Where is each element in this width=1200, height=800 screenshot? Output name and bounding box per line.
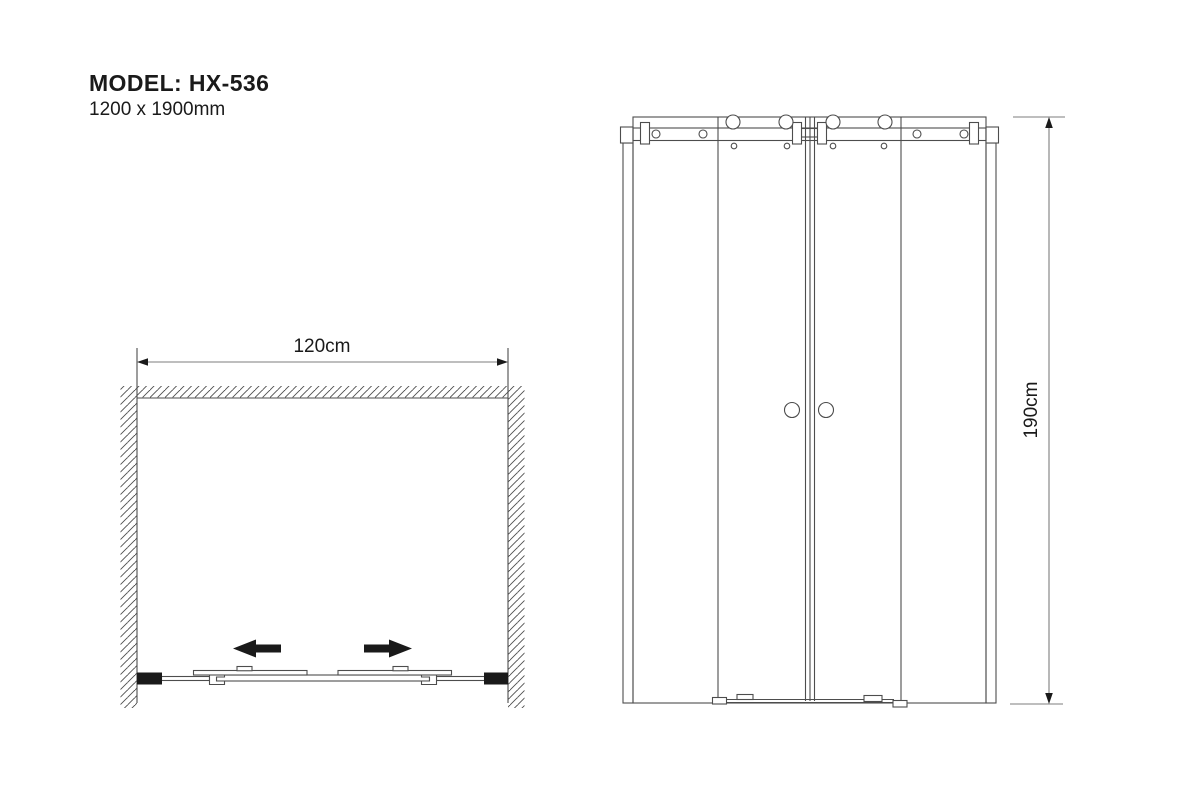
right-support-bar [437, 677, 485, 681]
left-bottom-guide [713, 698, 727, 705]
fixed-panel-profile [217, 675, 430, 681]
anti-jump-stop-icon [784, 143, 790, 149]
right-wall-bracket [484, 673, 508, 685]
right-wall-profile-cap [986, 127, 999, 143]
slide-direction-left-arrow-icon [233, 640, 281, 658]
roller-icon [779, 115, 793, 129]
plan-width-label: 120cm [293, 336, 350, 357]
track-screw-icon [652, 130, 660, 138]
plan-top-wall-hatch [137, 386, 508, 398]
left-wall-profile-cap [621, 127, 634, 143]
technical-drawing-page: MODEL: HX-536 1200 x 1900mm 120cm [0, 0, 1200, 800]
roller-icon [878, 115, 892, 129]
plan-width-dimension: 120cm [137, 336, 508, 366]
left-wall-profile [623, 143, 633, 703]
left-support-bar [162, 677, 210, 681]
plan-left-wall-hatch [121, 386, 138, 708]
right-wall-profile [986, 143, 996, 703]
left-bottom-stopper [737, 695, 753, 700]
track-screw-icon [699, 130, 707, 138]
center-right-track-bracket [818, 123, 827, 145]
right-bottom-stopper [864, 696, 882, 702]
slide-direction-right-arrow-icon [364, 640, 412, 658]
left-wall-bracket [137, 673, 162, 685]
roller-icon [826, 115, 840, 129]
plan-right-wall-hatch [508, 386, 525, 708]
right-bottom-guide [893, 701, 907, 708]
dimension-arrow-down-icon [1045, 693, 1053, 704]
left-roller-carrier [237, 667, 252, 671]
anti-jump-stop-icon [830, 143, 836, 149]
track-screw-icon [913, 130, 921, 138]
plan-door-assembly [137, 667, 508, 685]
dimension-arrow-left-icon [137, 358, 148, 366]
right-roller-carrier [393, 667, 408, 671]
dimension-arrow-right-icon [497, 358, 508, 366]
track-screw-icon [960, 130, 968, 138]
anti-jump-stop-icon [731, 143, 737, 149]
roller-icon [726, 115, 740, 129]
right-door-handle-knob [819, 403, 834, 418]
dimension-arrow-up-icon [1045, 117, 1053, 128]
elevation-height-dimension: 190cm [1010, 117, 1065, 704]
plan-view: 120cm [121, 336, 525, 708]
left-door-handle-knob [785, 403, 800, 418]
drawing-canvas: 120cm [0, 0, 1200, 800]
center-left-track-bracket [793, 123, 802, 145]
elevation-height-label: 190cm [1021, 381, 1042, 438]
elevation-view: 190cm [621, 115, 1066, 707]
anti-jump-stop-icon [881, 143, 887, 149]
left-track-bracket [641, 123, 650, 145]
right-track-bracket [970, 123, 979, 145]
